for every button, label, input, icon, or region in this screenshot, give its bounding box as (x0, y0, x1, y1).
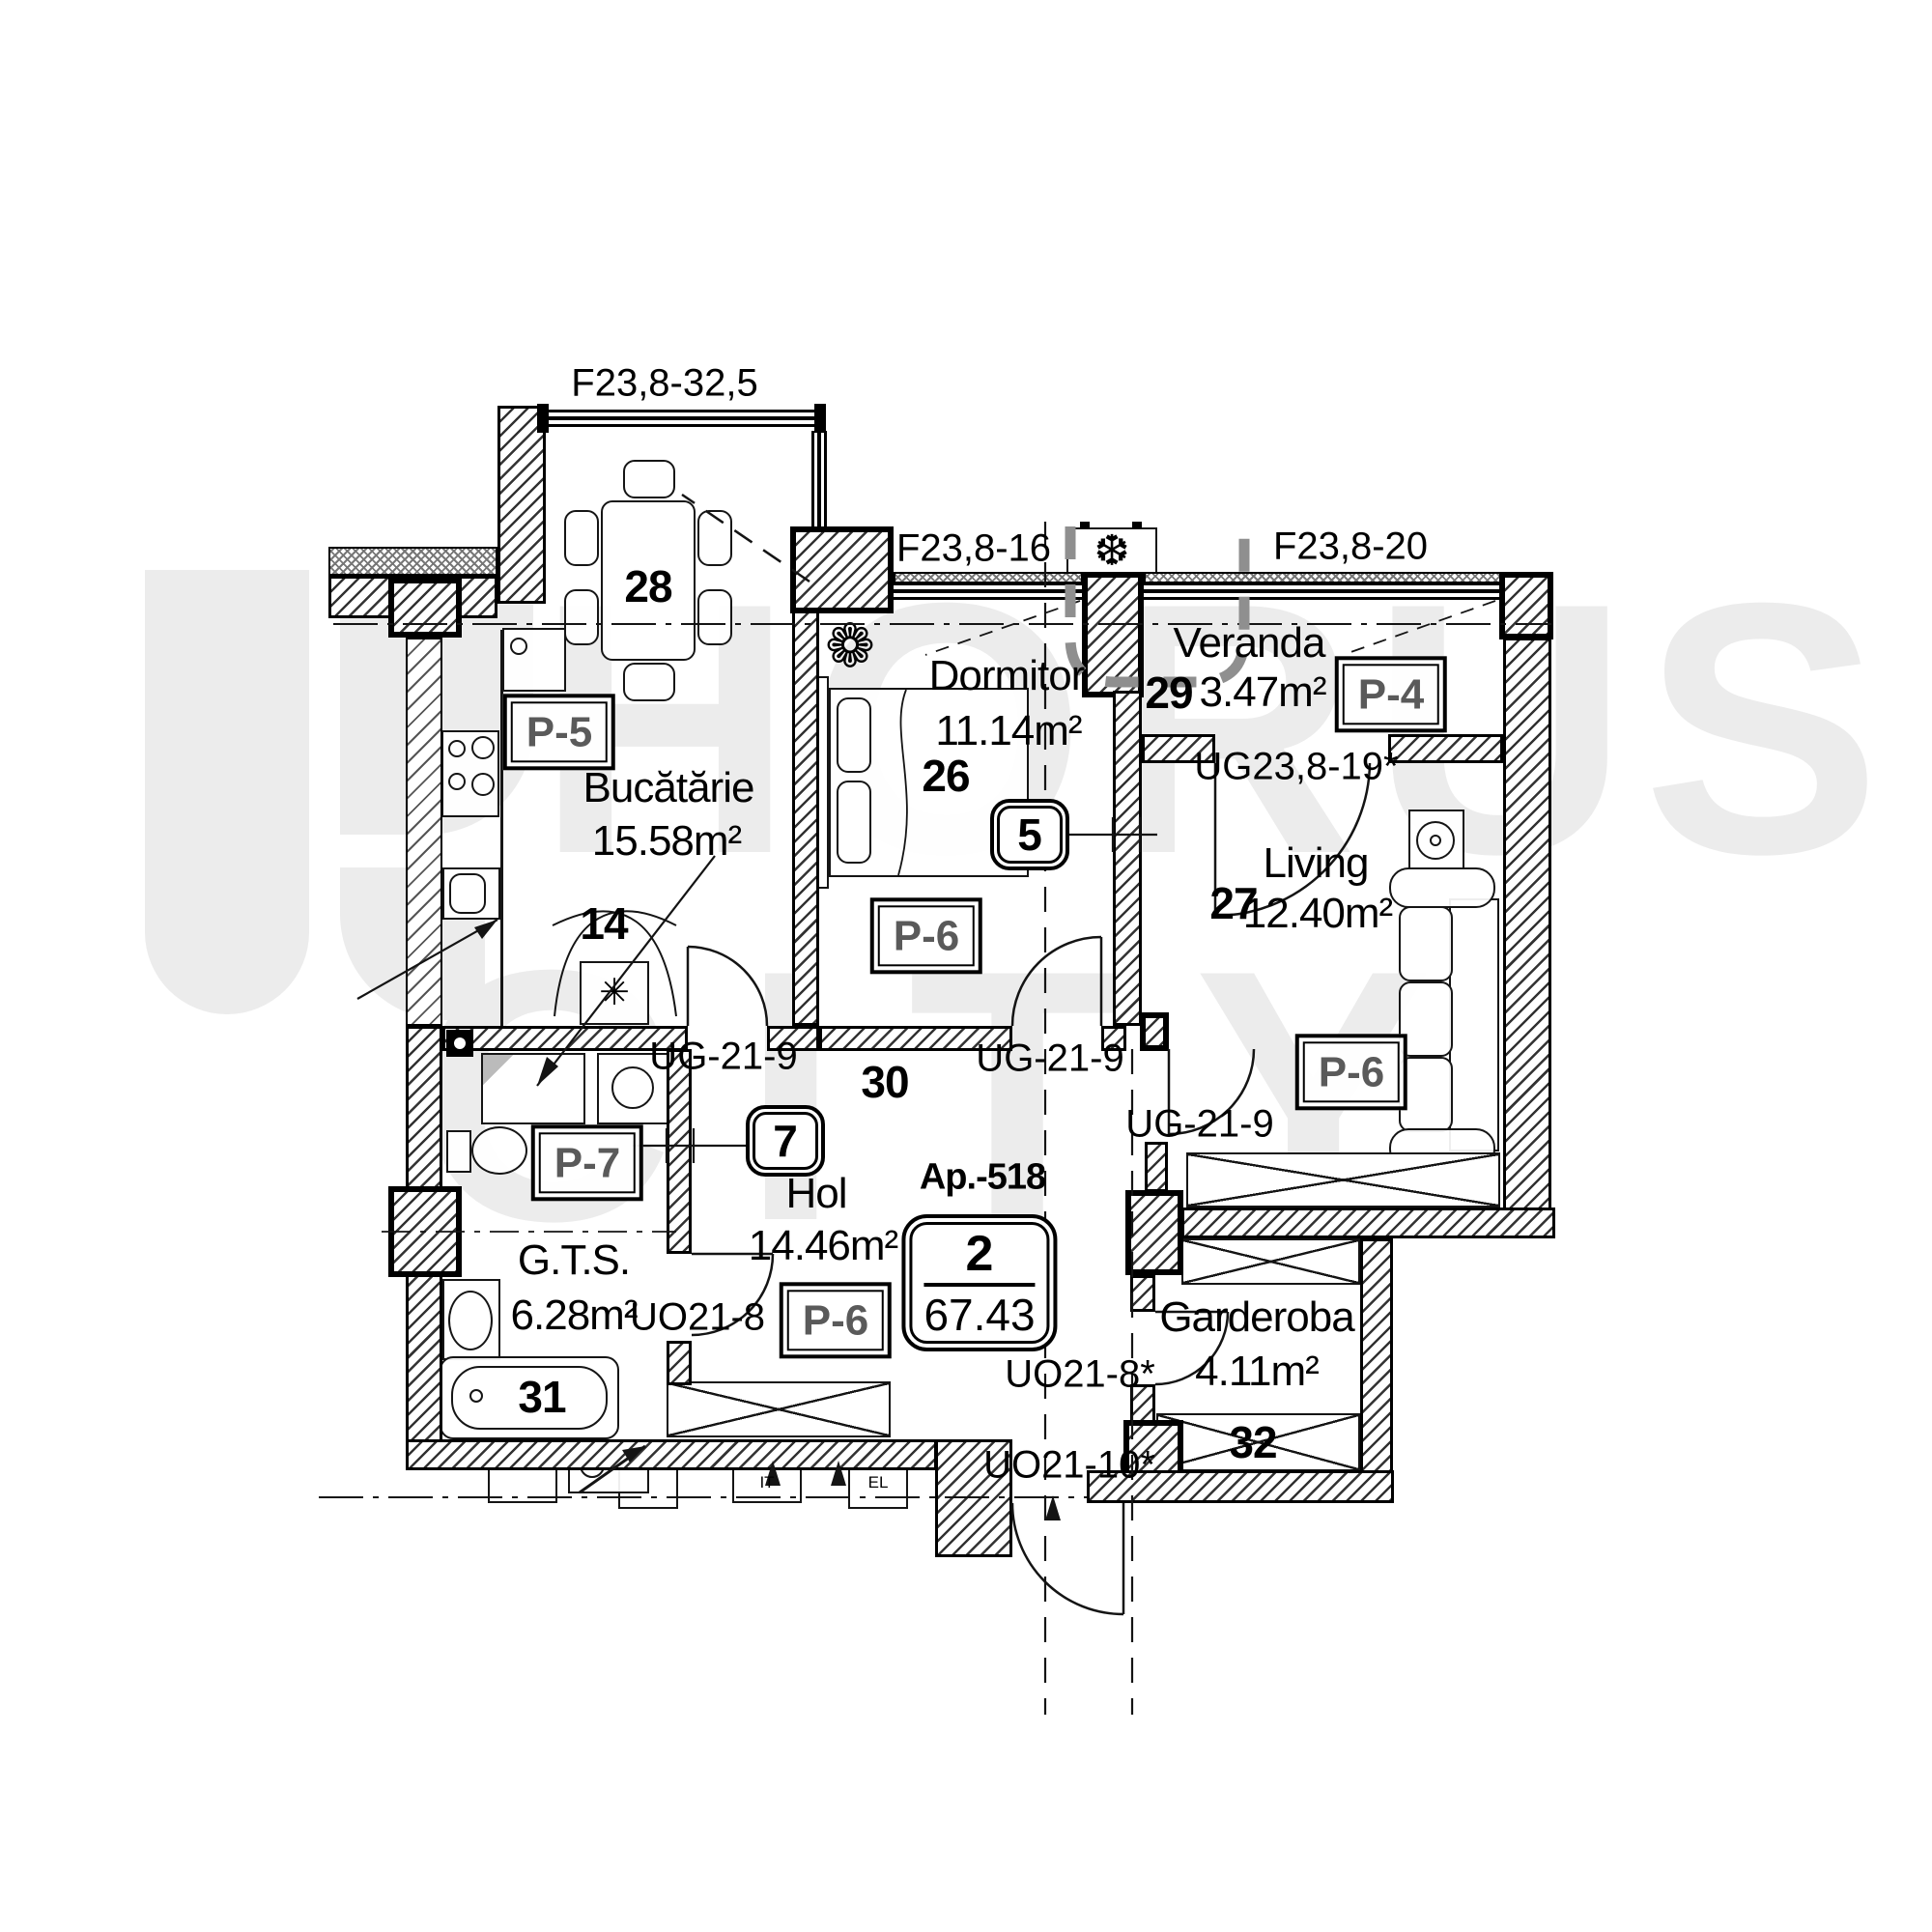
cable-arrow (1045, 1495, 1061, 1520)
finish-tag-bath: P-7 (531, 1124, 643, 1201)
door-label-living: UG-21-9 (1125, 1103, 1273, 1147)
room-area-veranda: 3.47m² (1200, 668, 1326, 717)
balcony-door-dash (682, 495, 810, 582)
room-name-bedroom: Dormitor (929, 652, 1085, 700)
room-name-kitchen: Bucătărie (583, 764, 754, 812)
room-area-wardrobe: 4.11m² (1195, 1348, 1319, 1396)
door-label-kitchen: UG-21-9 (649, 1036, 797, 1079)
door-arc-bedroom (1012, 937, 1101, 1026)
door-label-bath: UO21-8 (630, 1296, 765, 1340)
cable-arrow (831, 1461, 846, 1486)
room-number-hall: 30 (861, 1056, 908, 1108)
door-arc-entrance (1012, 1503, 1123, 1614)
window-label-bay: F23,8-32,5 (571, 362, 757, 406)
room-name-bath: G.T.S. (518, 1236, 630, 1285)
finish-tag-bedroom-text: P-6 (878, 905, 975, 966)
wall-marker-7-text: 7 (753, 1112, 818, 1170)
finish-tag-kitchen: P-5 (503, 694, 615, 770)
finish-tag-veranda: P-4 (1335, 656, 1447, 732)
room-area-living: 12.40m² (1243, 890, 1392, 938)
finish-tag-living: P-6 (1295, 1034, 1407, 1110)
marker5-leader (1062, 817, 1157, 852)
room-number-bedroom: 26 (922, 750, 969, 802)
finish-tag-bath-text: P-7 (539, 1132, 636, 1193)
room-area-bedroom: 11.14m² (935, 707, 1081, 755)
room-name-hall: Hol (785, 1170, 846, 1218)
bathtub-number: 31 (518, 1371, 565, 1423)
room-name-living: Living (1264, 839, 1369, 888)
floor-plan-canvas: HORUS CITY ❆ (0, 0, 1932, 1932)
finish-tag-hall: P-6 (780, 1282, 892, 1358)
apartment-label: Ap.-518 (920, 1157, 1045, 1199)
room-area-kitchen: 15.58m² (592, 817, 741, 866)
apartment-stamp: 2 67.43 (901, 1214, 1057, 1351)
finish-tag-veranda-text: P-4 (1343, 664, 1439, 724)
finish-tag-living-text: P-6 (1303, 1041, 1400, 1102)
finish-tag-kitchen-text: P-5 (511, 701, 608, 762)
blanket-line (898, 690, 907, 875)
door-arc-kitchen (688, 947, 767, 1026)
wall-marker-7: 7 (746, 1105, 825, 1177)
apartment-total-area: 67.43 (923, 1287, 1035, 1337)
finish-tag-bedroom: P-6 (870, 897, 982, 974)
window-label-veranda: F23,8-20 (1273, 526, 1428, 569)
room-area-bath: 6.28m² (511, 1292, 638, 1340)
apartment-stamp-inner: 2 67.43 (909, 1222, 1049, 1344)
wall-marker-5: 5 (990, 799, 1069, 870)
room-area-hall: 14.46m² (749, 1222, 897, 1270)
utility-label-el: EL (868, 1473, 889, 1492)
room-name-veranda: Veranda (1174, 619, 1325, 668)
heater-number: 14 (580, 897, 627, 950)
finish-tag-hall-text: P-6 (787, 1290, 884, 1350)
room-name-wardrobe: Garderoba (1159, 1293, 1353, 1342)
room-number-veranda: 29 (1145, 667, 1192, 719)
wall-marker-5-text: 5 (997, 806, 1063, 864)
window-label-bedroom: F23,8-16 (896, 527, 1051, 571)
dining-number: 28 (624, 560, 671, 612)
door-label-wardrobe: UO21-8* (1005, 1353, 1155, 1397)
utility-label-it: IT (759, 1473, 774, 1492)
apartment-rooms-count: 2 (923, 1229, 1035, 1287)
room-number-wardrobe: 32 (1229, 1416, 1276, 1468)
marker7-leader (633, 1128, 749, 1163)
door-label-veranda-living: UG23,8-19* (1194, 746, 1398, 789)
door-label-entrance: UO21-10* (983, 1444, 1155, 1488)
leader-arrowhead (474, 920, 497, 939)
door-label-bedroom: UG-21-9 (976, 1037, 1123, 1081)
